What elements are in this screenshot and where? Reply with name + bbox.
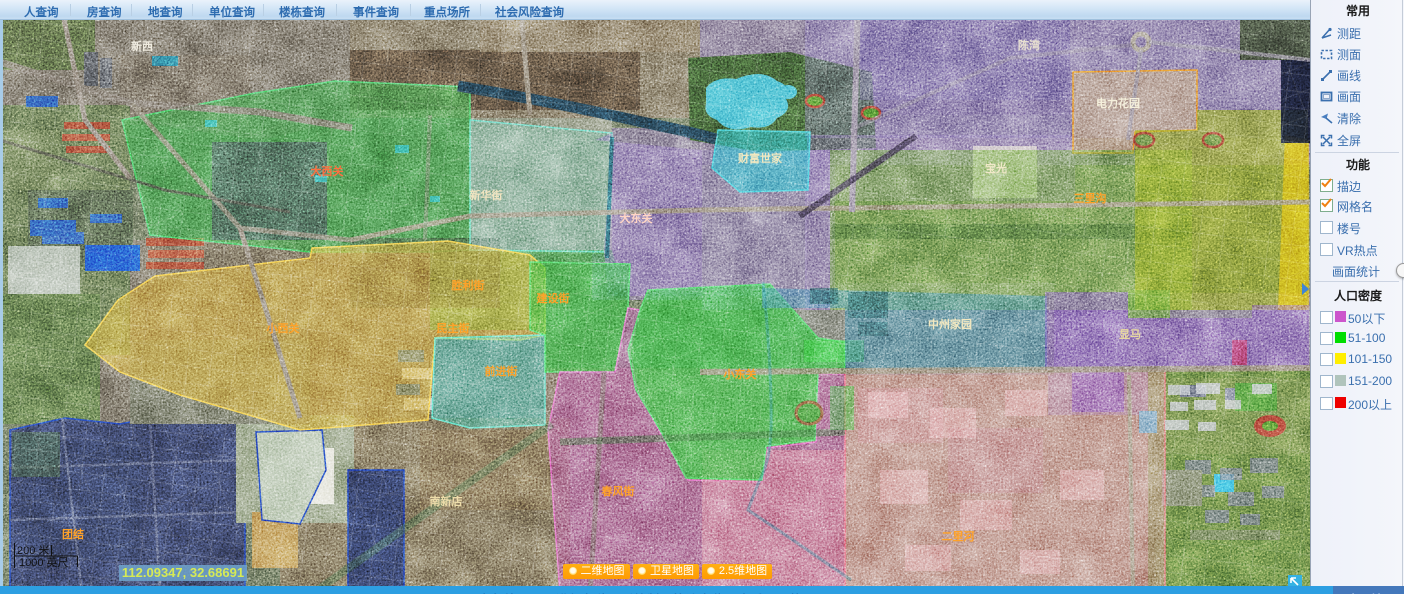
svg-text:小西关: 小西关 xyxy=(266,321,300,335)
svg-text:建设街: 建设街 xyxy=(537,291,570,305)
svg-text:陈湾: 陈湾 xyxy=(1018,38,1040,52)
svg-text:显马: 显马 xyxy=(1119,328,1141,341)
svg-text:200 米: 200 米 xyxy=(17,544,49,557)
svg-text:南新店: 南新店 xyxy=(430,494,463,508)
svg-text:大西关: 大西关 xyxy=(311,164,344,178)
svg-text:中州家园: 中州家园 xyxy=(928,317,972,331)
svg-text:电力花园: 电力花园 xyxy=(1096,96,1140,110)
svg-text:新华街: 新华街 xyxy=(470,188,503,202)
svg-text:大东关: 大东关 xyxy=(620,211,653,225)
svg-text:1000 英尺: 1000 英尺 xyxy=(19,555,69,569)
svg-text:胜利街: 胜利街 xyxy=(451,278,485,292)
svg-text:二里河: 二里河 xyxy=(942,529,975,543)
svg-text:春风街: 春风街 xyxy=(602,484,635,498)
svg-text:团结: 团结 xyxy=(62,527,84,541)
svg-text:财富世家: 财富世家 xyxy=(737,151,783,165)
svg-text:小东关: 小东关 xyxy=(723,367,757,381)
svg-text:三里沟: 三里沟 xyxy=(1074,191,1107,205)
svg-text:新西: 新西 xyxy=(131,39,153,53)
svg-text:民主街: 民主街 xyxy=(437,321,470,335)
svg-text:宝光: 宝光 xyxy=(985,161,1007,175)
svg-text:前进街: 前进街 xyxy=(485,364,518,378)
